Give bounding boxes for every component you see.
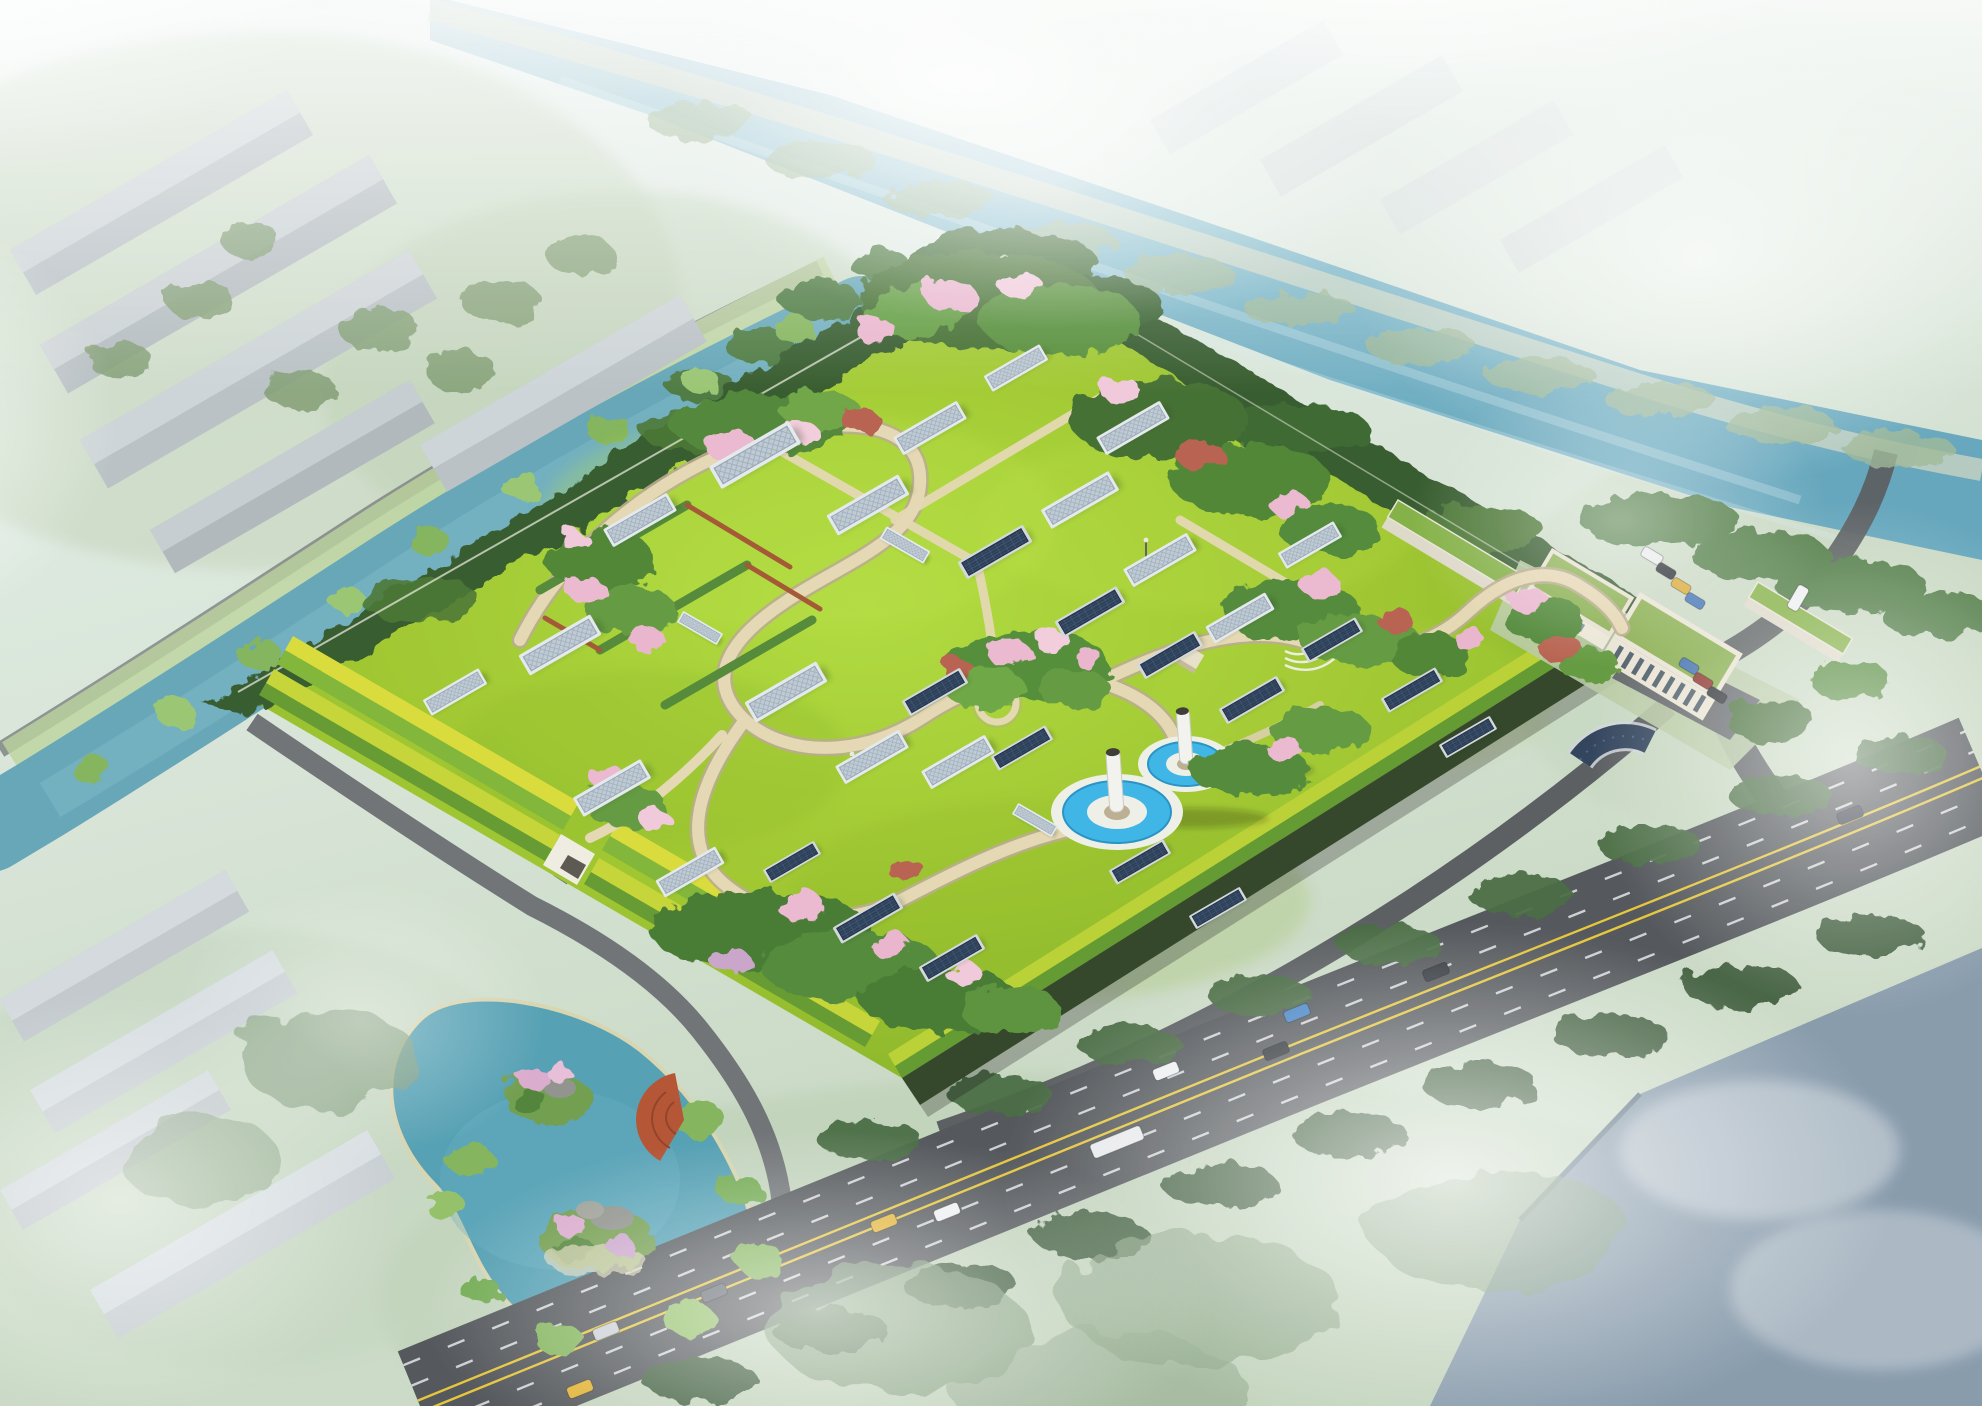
scene-canvas: Aerial bird's-eye rendering — riverside … [0,0,1982,1406]
aerial-rendering: Aerial bird's-eye rendering — riverside … [0,0,1982,1406]
island-rocks [576,1201,604,1219]
